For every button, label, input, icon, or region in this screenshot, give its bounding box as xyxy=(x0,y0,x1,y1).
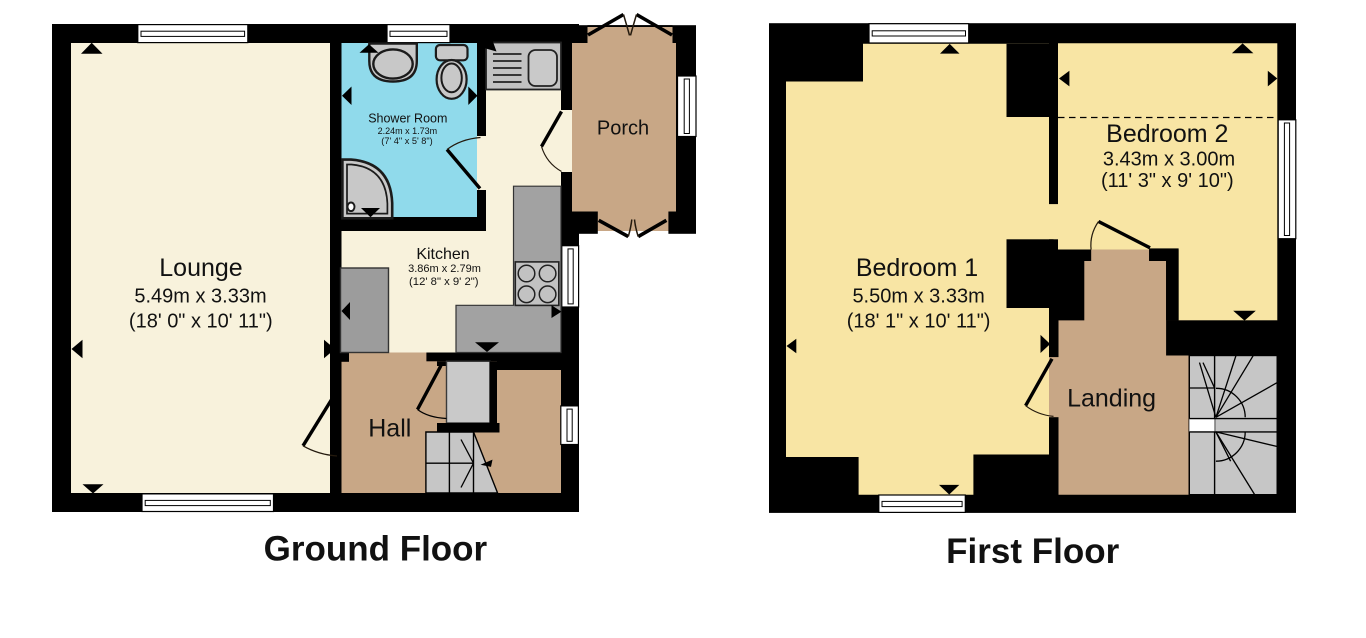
svg-text:(18' 1" x 10' 11"): (18' 1" x 10' 11") xyxy=(847,310,991,332)
svg-text:(7' 4" x 5' 8"): (7' 4" x 5' 8") xyxy=(381,136,432,146)
svg-text:Lounge: Lounge xyxy=(159,254,242,282)
svg-text:Porch: Porch xyxy=(597,117,649,139)
svg-text:5.49m x 3.33m: 5.49m x 3.33m xyxy=(134,286,266,308)
svg-text:Bedroom 2: Bedroom 2 xyxy=(1106,120,1228,148)
svg-text:3.43m x 3.00m: 3.43m x 3.00m xyxy=(1103,149,1235,171)
svg-text:First Floor: First Floor xyxy=(946,532,1119,571)
svg-text:Kitchen: Kitchen xyxy=(416,246,469,263)
svg-text:(18' 0" x 10' 11"): (18' 0" x 10' 11") xyxy=(129,310,273,332)
svg-text:Landing: Landing xyxy=(1067,385,1156,413)
svg-text:3.86m x 2.79m: 3.86m x 2.79m xyxy=(408,263,481,275)
svg-text:5.50m x 3.33m: 5.50m x 3.33m xyxy=(852,286,984,308)
svg-text:Bedroom 1: Bedroom 1 xyxy=(856,254,978,282)
svg-text:2.24m x 1.73m: 2.24m x 1.73m xyxy=(378,126,438,136)
svg-text:(12' 8" x 9' 2"): (12' 8" x 9' 2") xyxy=(409,276,479,288)
svg-text:Hall: Hall xyxy=(368,415,411,443)
svg-text:Ground Floor: Ground Floor xyxy=(264,530,488,569)
svg-text:(11' 3" x 9' 10"): (11' 3" x 9' 10") xyxy=(1101,170,1234,192)
svg-text:Shower Room: Shower Room xyxy=(368,112,447,126)
